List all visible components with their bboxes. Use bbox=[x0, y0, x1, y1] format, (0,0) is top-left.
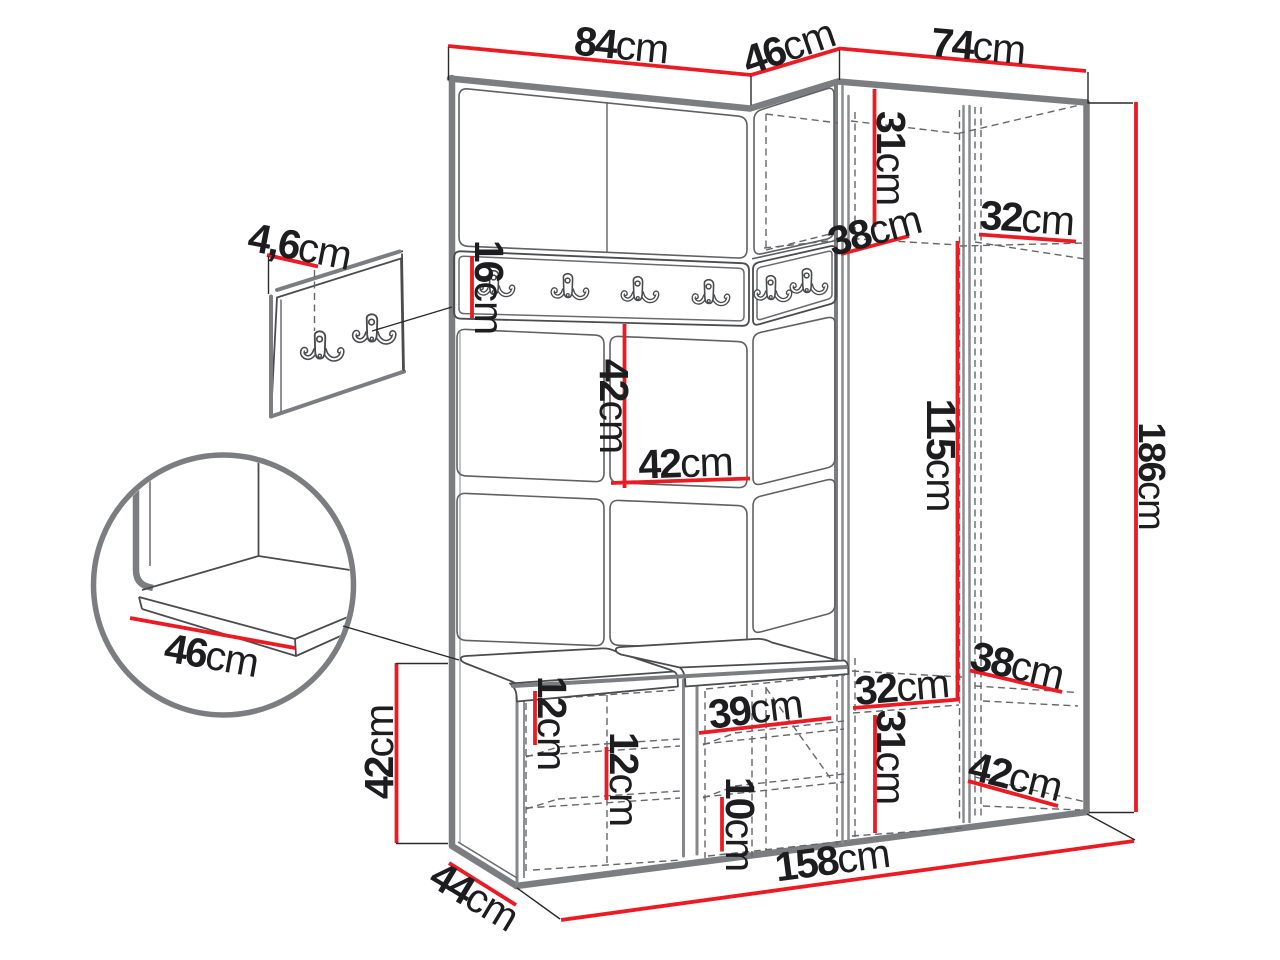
svg-text:32cm: 32cm bbox=[853, 660, 951, 714]
svg-text:74cm: 74cm bbox=[929, 19, 1027, 73]
svg-text:84cm: 84cm bbox=[572, 18, 670, 73]
svg-text:31cm: 31cm bbox=[868, 710, 914, 804]
svg-text:186cm: 186cm bbox=[1130, 422, 1172, 530]
svg-text:12cm: 12cm bbox=[601, 732, 647, 826]
svg-text:31cm: 31cm bbox=[868, 111, 914, 205]
svg-text:32cm: 32cm bbox=[978, 192, 1075, 244]
svg-text:115cm: 115cm bbox=[918, 399, 964, 512]
svg-text:12cm: 12cm bbox=[529, 676, 575, 770]
svg-text:10cm: 10cm bbox=[717, 777, 763, 871]
svg-text:16cm: 16cm bbox=[466, 240, 512, 334]
svg-text:42cm: 42cm bbox=[591, 359, 637, 453]
svg-text:42cm: 42cm bbox=[638, 438, 734, 487]
svg-text:42cm: 42cm bbox=[356, 705, 402, 799]
